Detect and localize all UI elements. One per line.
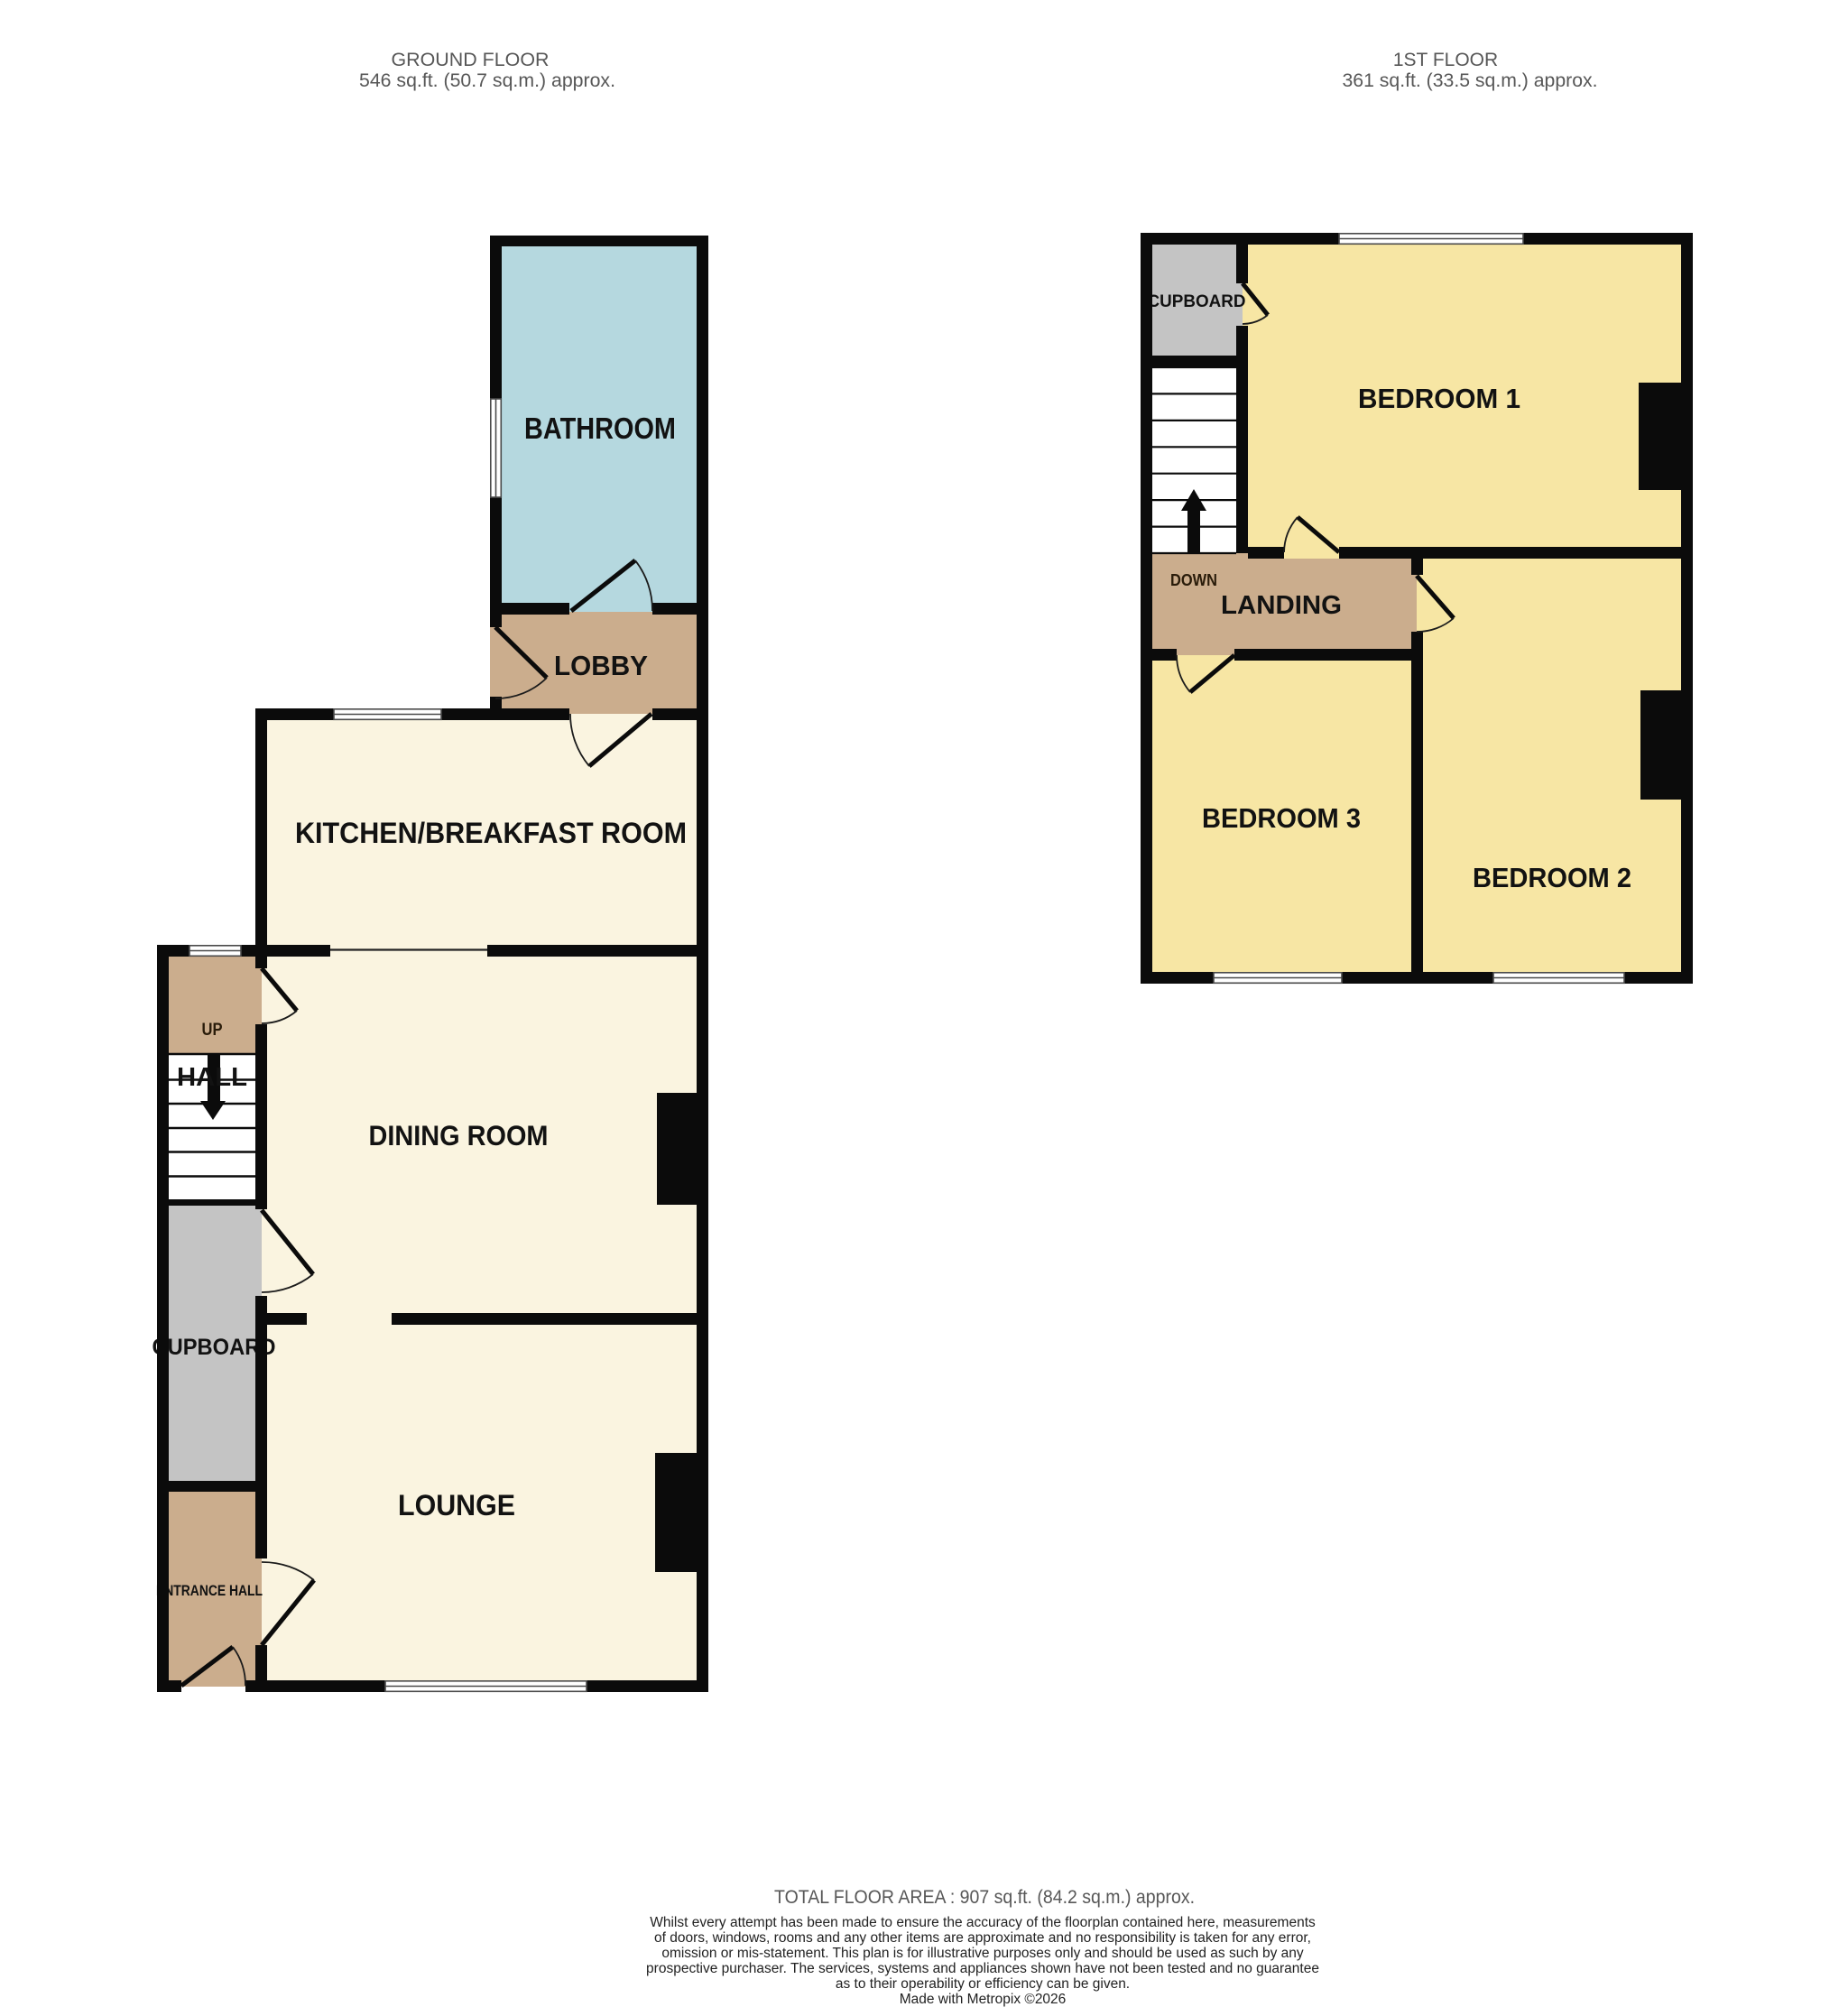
svg-text:DINING ROOM: DINING ROOM (369, 1119, 549, 1151)
svg-text:as to their operability or eff: as to their operability or efficiency ca… (836, 1976, 1130, 1992)
svg-text:GROUND FLOOR: GROUND FLOOR (392, 50, 550, 70)
svg-text:LOUNGE: LOUNGE (398, 1489, 515, 1521)
svg-text:ENTRANCE HALL: ENTRANCE HALL (156, 1582, 263, 1599)
svg-text:of doors, windows, rooms and a: of doors, windows, rooms and any other i… (654, 1930, 1311, 1946)
svg-text:CUPBOARD: CUPBOARD (1148, 292, 1246, 311)
svg-text:BATHROOM: BATHROOM (524, 412, 676, 445)
svg-text:KITCHEN/BREAKFAST ROOM: KITCHEN/BREAKFAST ROOM (295, 817, 687, 849)
svg-text:HALL: HALL (177, 1063, 247, 1092)
svg-text:BEDROOM 1: BEDROOM 1 (1358, 383, 1520, 414)
svg-text:1ST FLOOR: 1ST FLOOR (1393, 50, 1498, 70)
svg-text:LOBBY: LOBBY (554, 650, 648, 681)
svg-text:LANDING: LANDING (1221, 591, 1342, 620)
svg-text:BEDROOM 3: BEDROOM 3 (1202, 802, 1361, 834)
svg-text:omission or mis-statement. Thi: omission or mis-statement. This plan is … (661, 1946, 1304, 1961)
svg-text:546 sq.ft. (50.7 sq.m.) approx: 546 sq.ft. (50.7 sq.m.) approx. (359, 70, 615, 91)
svg-text:prospective purchaser. The ser: prospective purchaser. The services, sys… (646, 1961, 1319, 1976)
svg-text:BEDROOM 2: BEDROOM 2 (1473, 862, 1631, 893)
svg-text:361 sq.ft. (33.5 sq.m.) approx: 361 sq.ft. (33.5 sq.m.) approx. (1343, 70, 1598, 91)
svg-text:Made with Metropix ©2026: Made with Metropix ©2026 (900, 1992, 1067, 2007)
svg-text:DOWN: DOWN (1170, 571, 1217, 589)
svg-text:Whilst every attempt has been: Whilst every attempt has been made to en… (650, 1915, 1316, 1930)
svg-text:UP: UP (202, 1021, 223, 1040)
svg-text:TOTAL FLOOR AREA : 907 sq.ft.: TOTAL FLOOR AREA : 907 sq.ft. (84.2 sq.m… (774, 1887, 1195, 1908)
